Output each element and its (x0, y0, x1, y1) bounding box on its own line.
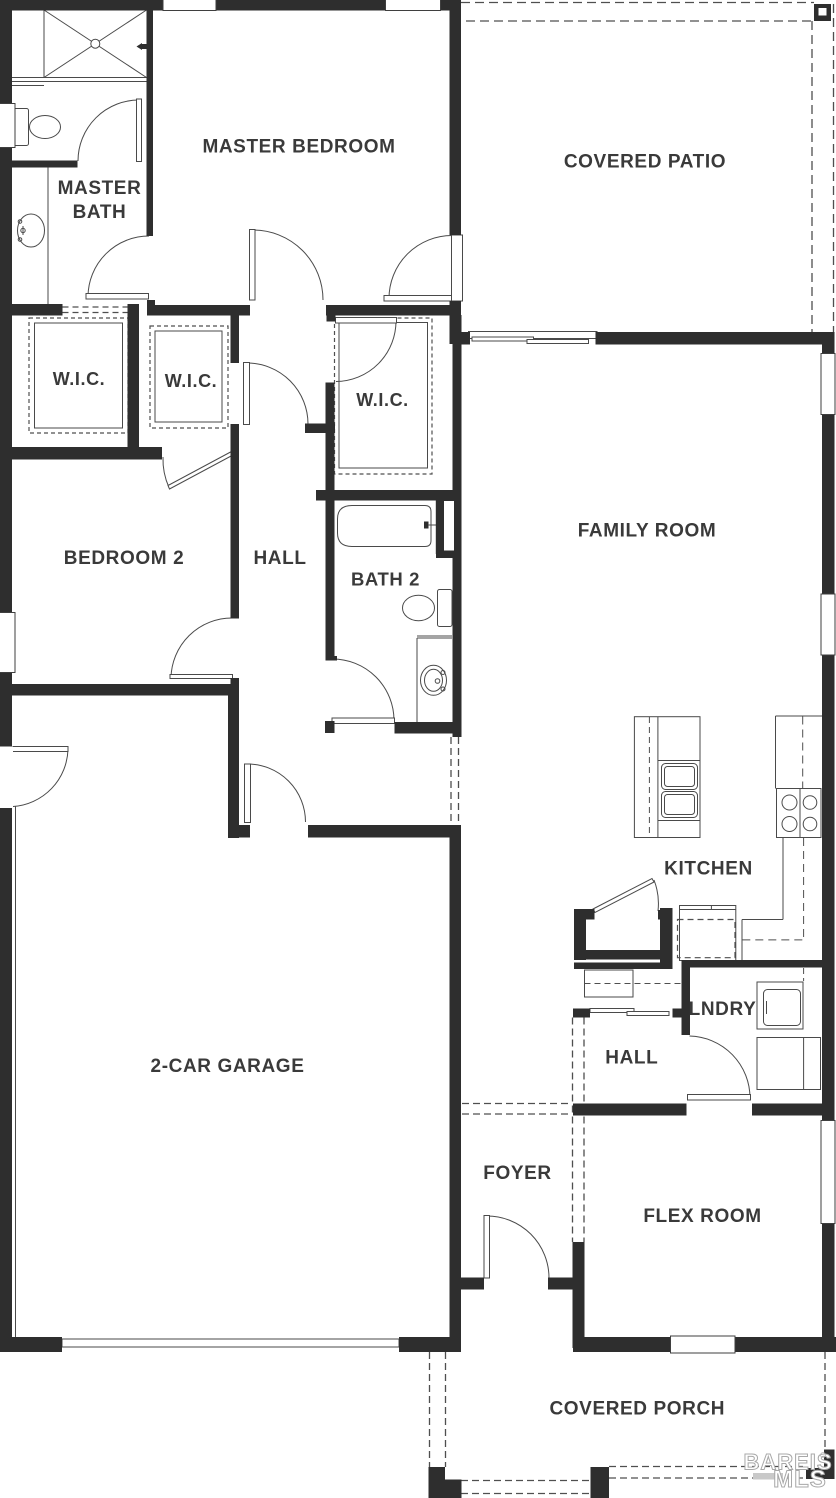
svg-text:2-CAR GARAGE: 2-CAR GARAGE (151, 1056, 305, 1077)
svg-text:MASTER: MASTER (58, 178, 142, 199)
svg-text:FOYER: FOYER (483, 1163, 551, 1184)
svg-text:BATH 2: BATH 2 (351, 569, 420, 590)
svg-text:COVERED PORCH: COVERED PORCH (549, 1399, 725, 1420)
svg-text:FLEX ROOM: FLEX ROOM (643, 1206, 761, 1227)
svg-text:KITCHEN: KITCHEN (664, 859, 753, 880)
svg-text:BEDROOM 2: BEDROOM 2 (64, 548, 184, 569)
svg-text:W.I.C.: W.I.C. (53, 369, 106, 389)
svg-text:MLS: MLS (773, 1466, 827, 1493)
svg-text:MASTER BEDROOM: MASTER BEDROOM (202, 137, 395, 158)
svg-text:LNDRY: LNDRY (689, 999, 757, 1020)
svg-text:HALL: HALL (605, 1048, 658, 1069)
svg-text:BATH: BATH (73, 202, 127, 223)
svg-text:COVERED PATIO: COVERED PATIO (564, 152, 726, 173)
svg-text:W.I.C.: W.I.C. (356, 390, 409, 410)
svg-text:W.I.C.: W.I.C. (165, 371, 218, 391)
svg-text:FAMILY ROOM: FAMILY ROOM (578, 521, 717, 542)
svg-text:HALL: HALL (253, 548, 306, 569)
